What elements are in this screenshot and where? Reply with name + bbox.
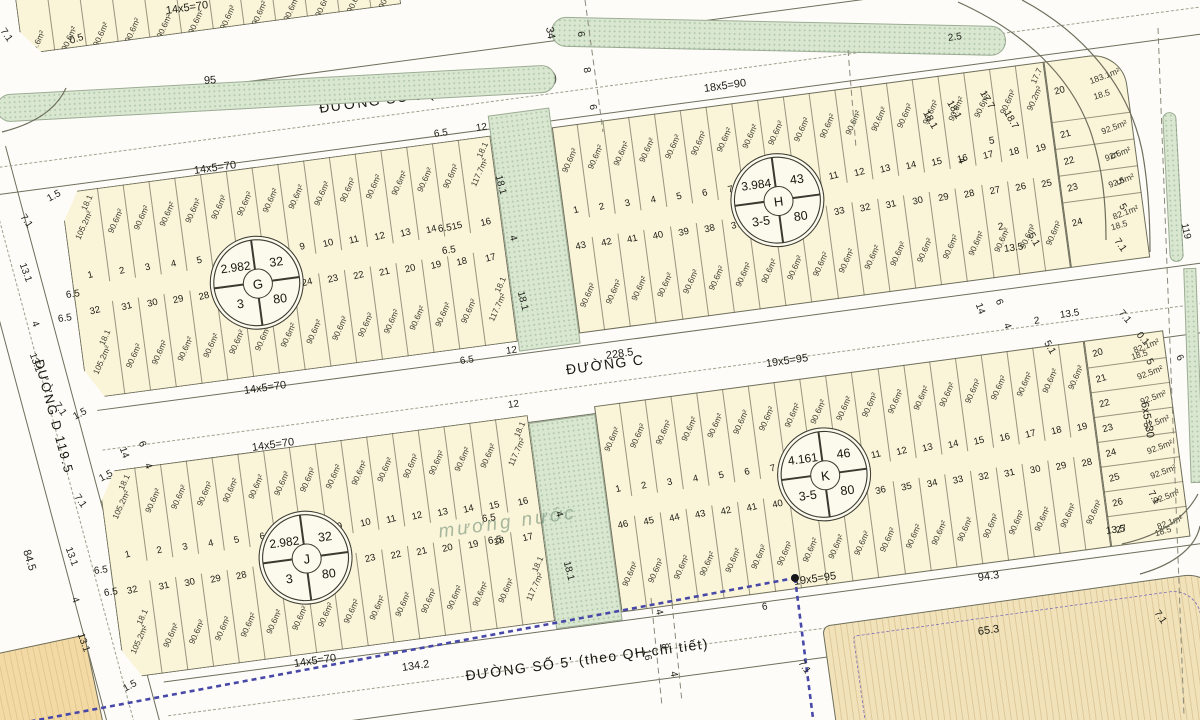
- circle-lot-count: 32: [309, 528, 341, 546]
- cadastral-map: ĐƯỜNG D 119.5 ĐƯỜNG SỐ 3 (theo QH chi ti…: [0, 0, 1200, 720]
- lot-number: 32: [859, 201, 872, 214]
- lot-number: 18: [1050, 424, 1063, 437]
- lot-number: 14: [904, 159, 917, 172]
- lot-number: 42: [719, 505, 732, 518]
- lot-area: 90.6m²: [217, 3, 237, 31]
- lot-area: 90.6m²: [679, 415, 699, 443]
- lot-depth: 18.1: [134, 607, 150, 626]
- lot-area: 90.6m²: [810, 250, 830, 278]
- lot-area: 90.6m²: [577, 281, 597, 309]
- lot-area: 90.6m²: [1044, 219, 1064, 247]
- lot-area: 117.7m²: [468, 157, 489, 188]
- lot-area: 90.6m²: [363, 173, 383, 201]
- lot-number: 39: [678, 226, 691, 239]
- lot-number: 38: [704, 222, 717, 235]
- lot-area: 90.6m²: [174, 335, 194, 363]
- lot-area: 90.6m²: [603, 278, 623, 306]
- lot-number: 23: [1066, 181, 1079, 194]
- lot-area: 90.6m²: [212, 615, 232, 643]
- lot-number: 13: [878, 163, 891, 176]
- lot-area: 90.6m²: [495, 577, 515, 605]
- lot-number: 31: [157, 580, 170, 593]
- lot-area: 90.6m²: [477, 442, 497, 470]
- street-label-duong-c: ĐƯỜNG C: [565, 351, 645, 377]
- lot-area: 90.6m²: [730, 408, 750, 436]
- lot-area: 90.6m²: [186, 618, 206, 646]
- lot-area: 92.5m²: [1107, 171, 1136, 190]
- lot-area: 90.6m²: [105, 207, 125, 235]
- lot-area: 105.2m²: [72, 209, 94, 241]
- lot-number: 20: [1091, 346, 1104, 359]
- lot-area: 90.6m²: [714, 126, 734, 154]
- lot-depth: 18.1: [511, 420, 527, 439]
- lot-area: 90.6m²: [341, 597, 361, 625]
- lot-area: 90.6m²: [1006, 509, 1026, 537]
- lot-area: 90.6m²: [758, 257, 778, 285]
- lot-number: 17: [1024, 428, 1037, 441]
- lot-area: 90.6m²: [733, 261, 753, 289]
- lot-area: 90.6m²: [182, 197, 202, 225]
- lot-number: 33: [833, 205, 846, 218]
- lot-number: 15: [930, 156, 943, 169]
- lot-area: 90.6m²: [800, 536, 820, 564]
- lot-number: 17: [484, 251, 497, 264]
- lot-number: 23: [326, 273, 339, 286]
- lot-number: 1: [123, 549, 131, 561]
- lot-area: 90.6m²: [1014, 370, 1034, 398]
- lot-area: 90.6m²: [988, 374, 1008, 402]
- lot-area: 90.6m²: [610, 140, 630, 168]
- lot-depth: 18.1: [79, 193, 95, 212]
- lot-number: 12: [853, 166, 866, 179]
- lot-area: 90.6m²: [920, 98, 940, 126]
- lot-number: 10: [359, 516, 372, 529]
- lot-area: 90.6m²: [842, 109, 862, 137]
- lot-area: 90.6m²: [123, 342, 143, 370]
- lot-area: 90.6m²: [91, 20, 111, 48]
- lot-area: 90.6m²: [432, 301, 452, 329]
- lot-area: 90.6m²: [894, 102, 914, 130]
- lot-area: 90.6m²: [414, 166, 434, 194]
- lot-number: 2: [597, 201, 605, 213]
- lot-area: 90.6m²: [653, 419, 673, 447]
- lot-area: 117.7m²: [486, 291, 507, 322]
- circle-floors-value: 3: [273, 570, 305, 588]
- lot-area: 90.6m²: [1040, 367, 1060, 395]
- lot-area: 90.6m²: [381, 308, 401, 336]
- lot-area: 90.6m²: [208, 193, 228, 221]
- lot-area: 90.6m²: [315, 601, 335, 629]
- lot-area: 90.6m²: [585, 143, 605, 171]
- lot-number: 3: [143, 262, 151, 274]
- lot-area: 90.6m²: [688, 129, 708, 157]
- lot-area: 90.6m²: [59, 25, 79, 53]
- lot-area: 90.6m²: [817, 112, 837, 140]
- lot-area: 90.6m²: [859, 391, 879, 419]
- lot-area: 92.5m²: [1149, 462, 1178, 481]
- lot-number: 14: [424, 223, 437, 236]
- lot-number: 1: [614, 483, 622, 495]
- lot-area: 90.6m²: [168, 483, 188, 511]
- lot-area: 90.6m²: [271, 469, 291, 497]
- lot-depth: 17.7: [1028, 66, 1044, 85]
- lot-area: 90.6m²: [888, 240, 908, 268]
- lot-area: 90.6m²: [937, 381, 957, 409]
- lot-number: 12: [895, 445, 908, 458]
- lot-area: 90.6m²: [440, 162, 460, 190]
- lot-area: 90.6m²: [559, 147, 579, 175]
- lot-area: 90.6m²: [885, 388, 905, 416]
- lot-number: 31: [885, 198, 898, 211]
- lot-area: 90.6m²: [877, 526, 897, 554]
- circle-lot-count: 46: [828, 445, 860, 463]
- lot-number: 18: [455, 255, 468, 268]
- lot-area: 90.6m²: [1084, 498, 1104, 526]
- lot-area: 90.6m²: [355, 311, 375, 339]
- lot-area: 90.6m²: [1018, 223, 1038, 251]
- lot-area: 90.6m²: [836, 247, 856, 275]
- lot-area: 90.6m²: [285, 183, 305, 211]
- lot-number: 7: [769, 463, 777, 475]
- lot-number: 4: [206, 538, 214, 550]
- lot-number: 15: [973, 434, 986, 447]
- lot-area: 90.6m²: [374, 456, 394, 484]
- lot-area: 90.6m²: [645, 557, 665, 585]
- lot-number: 30: [183, 576, 196, 589]
- lot-area: 90.6m²: [946, 95, 966, 123]
- lot-area: 90.6m²: [28, 29, 48, 57]
- lot-area: 90.6m²: [655, 271, 675, 299]
- lot-area: 90.6m²: [697, 550, 717, 578]
- lot-area: 90.6m²: [774, 540, 794, 568]
- lot-area: 90.6m²: [911, 384, 931, 412]
- lot-number: 29: [209, 573, 222, 586]
- lot-area: 90.6m²: [1066, 363, 1086, 391]
- lot-number: 11: [870, 448, 882, 461]
- lot-number: 21: [378, 266, 391, 279]
- lot-area: 90.6m²: [662, 133, 682, 161]
- lot-number: 28: [197, 290, 210, 303]
- lot-number: 5: [232, 534, 240, 546]
- circle-floors-value: 3: [225, 295, 257, 313]
- lot-number: 36: [874, 484, 887, 497]
- lot-area: 90.6m²: [200, 332, 220, 360]
- lot-area: 90.6m²: [281, 0, 301, 23]
- lot-number: 11: [347, 234, 359, 247]
- lot-number: 23: [363, 552, 376, 565]
- lot-area: 90.6m²: [671, 553, 691, 581]
- lot-area: 90.6m²: [756, 405, 776, 433]
- lot-area: 90.6m²: [348, 459, 368, 487]
- lot-depth: 18.1: [116, 473, 132, 492]
- lot-number: 15: [487, 499, 500, 512]
- lot-number: 17: [981, 149, 994, 162]
- lot-number: 46: [616, 518, 629, 531]
- lot-depth: 18.5: [1110, 218, 1129, 232]
- lot-area: 90.6m²: [392, 590, 412, 618]
- lot-area: 90.6m²: [914, 236, 934, 264]
- lot-number: 44: [668, 511, 681, 524]
- lot-number: 5: [675, 191, 683, 203]
- lot-area: 90.6m²: [765, 119, 785, 147]
- lot-number: 13: [921, 441, 934, 454]
- block-top-corner: 90.6m²90.6m²90.6m²90.6m²90.6m²90.6m²90.6…: [9, 0, 402, 55]
- circle-lot-count: 43: [781, 170, 813, 188]
- lot-number: 4: [649, 194, 657, 206]
- lot-area: 90.6m²: [707, 264, 727, 292]
- lot-number: 3: [181, 541, 189, 553]
- lot-number: 19: [429, 259, 442, 272]
- lot-number: 27: [989, 184, 1002, 197]
- lot-number: 22: [1098, 397, 1111, 410]
- lot-number: 11: [827, 170, 839, 183]
- lot-area: 90.6m²: [636, 136, 656, 164]
- lot-area: 90.6m²: [981, 512, 1001, 540]
- lot-number: 18: [492, 535, 505, 548]
- lot-area: 90.6m²: [834, 394, 854, 422]
- lot-number: 32: [978, 470, 991, 483]
- lot-number: 41: [626, 233, 639, 246]
- lot-area: 90.6m²: [311, 180, 331, 208]
- lot-number: 12: [410, 510, 423, 523]
- lot-area: 90.6m²: [344, 0, 364, 14]
- lot-number: 19: [1034, 142, 1047, 155]
- lot-area: 90.2m²: [1024, 84, 1044, 112]
- lot-number: 25: [1108, 471, 1121, 484]
- lot-area: 90.6m²: [782, 401, 802, 429]
- lot-number: 13: [399, 227, 412, 240]
- lot-area: 90.6m²: [303, 318, 323, 346]
- lot-area: 90.6m²: [929, 519, 949, 547]
- lot-number: 5: [195, 255, 203, 267]
- lot-number: 26: [1015, 181, 1028, 194]
- lot-number: 16: [517, 495, 530, 508]
- lot-depth: 18.1: [492, 275, 508, 294]
- lot-number: 23: [1101, 422, 1114, 435]
- lot-depth: 18.1: [529, 555, 545, 574]
- lot-area: 90.6m²: [289, 604, 309, 632]
- lot-number: 21: [1095, 372, 1108, 385]
- lot-area: 90.6m²: [142, 487, 162, 515]
- lot-number: 9: [298, 241, 306, 253]
- lot-number: 41: [745, 501, 758, 514]
- lot-area: 90.6m²: [681, 268, 701, 296]
- lot-area: 90.6m²: [366, 594, 386, 622]
- lot-number: 17: [521, 531, 534, 544]
- lot-area: 90.6m²: [260, 186, 280, 214]
- lot-number: 29: [171, 293, 184, 306]
- lot-number: 21: [415, 545, 428, 558]
- lot-area: 90.6m²: [784, 254, 804, 282]
- lot: 90.6m²: [10, 0, 56, 56]
- lot-number: 24: [1071, 216, 1084, 229]
- lot-area: 90.6m²: [312, 0, 332, 18]
- lot-area: 92.5m²: [1104, 145, 1133, 164]
- lot-area: 90.6m²: [149, 338, 169, 366]
- lot-area: 90.6m²: [160, 621, 180, 649]
- lot-number: 35: [900, 480, 913, 493]
- lot-number: 30: [146, 297, 159, 310]
- lot-area: 90.6m²: [940, 233, 960, 261]
- lot-depth: 18.1: [474, 140, 490, 159]
- lot-number: 28: [963, 188, 976, 201]
- lot-area: 90.6m²: [376, 0, 396, 10]
- lot-number: 19: [1076, 421, 1089, 434]
- lot-area: 90.6m²: [194, 480, 214, 508]
- lot-area: 105.2m²: [110, 489, 132, 521]
- lot-area: 117.7m²: [524, 571, 545, 602]
- lot-area: 90.6m²: [992, 226, 1012, 254]
- lot-number: 2: [640, 480, 648, 492]
- lot-number: 42: [600, 236, 613, 249]
- lot-area: 92.5m²: [1146, 437, 1175, 456]
- lot-area: 90.6m²: [862, 243, 882, 271]
- lot-area: 90.6m²: [791, 116, 811, 144]
- lot-area: 90.6m²: [826, 533, 846, 561]
- lot-number: 3: [666, 476, 674, 488]
- lot-number: 14: [947, 438, 960, 451]
- lot-area: 90.6m²: [971, 92, 991, 120]
- lot-area: 90.6m²: [629, 274, 649, 302]
- lot-number: 21: [1059, 128, 1072, 141]
- lot-area: 90.6m²: [238, 611, 258, 639]
- lot-number: 4: [169, 258, 177, 270]
- lot-number: 40: [652, 229, 665, 242]
- lot-area: 90.6m²: [1058, 502, 1078, 530]
- lot-area: 90.6m²: [263, 608, 283, 636]
- lot-number: 3: [623, 198, 631, 210]
- lot-number: 30: [911, 195, 924, 208]
- lot-number: 15: [450, 220, 463, 233]
- lot-number: 2: [155, 545, 163, 557]
- lot-area: 90.6m²: [400, 452, 420, 480]
- lot-area: 90.6m²: [704, 412, 724, 440]
- lot-number: 20: [1053, 84, 1066, 97]
- lot-number: 43: [574, 240, 587, 253]
- lot-area: 90.6m²: [444, 584, 464, 612]
- lot-number: 26: [1111, 496, 1124, 509]
- lot-number: 20: [441, 542, 454, 555]
- lot-area: 90.6m²: [601, 425, 621, 453]
- lot-number: 1: [86, 269, 94, 281]
- circle-floors-value: 3-5: [792, 487, 824, 505]
- lot-area: 90.6m²: [249, 0, 269, 27]
- lot-area: 90.6m²: [748, 543, 768, 571]
- lot-number: 6: [700, 187, 708, 199]
- lot-number: 30: [1029, 463, 1042, 476]
- lot-area: 90.6m²: [337, 176, 357, 204]
- lot-number: 20: [403, 262, 416, 275]
- lot-area: 183.1m²: [1089, 66, 1122, 86]
- lot-area: 90.6m²: [470, 580, 490, 608]
- lot-number: 16: [956, 152, 969, 165]
- lot-number: 14: [462, 503, 475, 516]
- lot-number: 34: [926, 477, 939, 490]
- lot-number: 6: [743, 466, 751, 478]
- lot-area: 92.5m²: [1139, 387, 1168, 406]
- lot-area: 90.6m²: [739, 122, 759, 150]
- circle-lot-count: 32: [260, 253, 292, 271]
- lot: 2482.1m²18.5: [1062, 193, 1147, 245]
- lot-area: 90.6m²: [278, 321, 298, 349]
- lot-area: 92.5m²: [1152, 487, 1181, 506]
- lot-area: 90.6m²: [1032, 505, 1052, 533]
- lot-number: 1: [572, 204, 580, 216]
- lot-area: 90.6m²: [627, 422, 647, 450]
- lot-area: 90.6m²: [388, 169, 408, 197]
- lot-number: 40: [771, 498, 784, 511]
- lot-number: 4: [691, 473, 699, 485]
- lot-number: 22: [389, 549, 402, 562]
- lot-area: 92.5m²: [1142, 412, 1171, 431]
- lot-number: 2: [118, 265, 126, 277]
- lot-area: 90.6m²: [123, 16, 143, 44]
- lot-area: 90.6m²: [297, 466, 317, 494]
- lot-area: 90.6m²: [452, 445, 472, 473]
- lot-number: 32: [88, 304, 101, 317]
- lot-depth: 18.1: [97, 328, 113, 347]
- lot-number: 16: [479, 216, 492, 229]
- lot-area: 90.6m²: [852, 529, 872, 557]
- lot-number: 27: [1115, 523, 1128, 536]
- lot-area: 90.6m²: [323, 463, 343, 491]
- lot-area: 90.6m²: [418, 587, 438, 615]
- lot-number: 43: [694, 508, 707, 521]
- lot-area: 90.6m²: [186, 8, 206, 36]
- lot-area: 90.6m²: [426, 449, 446, 477]
- lot-number: 24: [1105, 447, 1118, 460]
- lot-area: 90.6m²: [157, 200, 177, 228]
- lot-area: 90.6m²: [234, 190, 254, 218]
- lot-number: 45: [642, 515, 655, 528]
- lot: 20183.1m²18.5: [1043, 51, 1130, 123]
- lot-area: 90.6m²: [722, 546, 742, 574]
- lot-number: 33: [952, 474, 965, 487]
- lot-area: 90.6m²: [963, 377, 983, 405]
- lot-number: 12: [373, 230, 386, 243]
- lot-area: 90.6m²: [245, 473, 265, 501]
- lot-number: 31: [1003, 467, 1016, 480]
- lot-number: 25: [1041, 177, 1054, 190]
- lot-number: 10: [321, 237, 334, 250]
- lot-number: 22: [352, 269, 365, 282]
- lot-area: 90.6m²: [903, 522, 923, 550]
- lot-number: 18: [1007, 145, 1020, 158]
- circle-floors-value: 3-5: [745, 213, 777, 231]
- lot-number: 11: [385, 513, 397, 526]
- lot-number: 32: [125, 584, 138, 597]
- lot-number: 31: [120, 300, 133, 313]
- lot-area: 90.6m²: [406, 304, 426, 332]
- lot-area: 90.6m²: [329, 314, 349, 342]
- lot-area: 90.6m²: [808, 398, 828, 426]
- lot-number: 13: [436, 506, 449, 519]
- lot-number: 16: [999, 431, 1012, 444]
- lot-area: 90.6m²: [154, 12, 174, 40]
- lot-number: 5: [717, 470, 725, 482]
- lot-area: 105.2m²: [90, 344, 112, 376]
- lot-number: 19: [466, 538, 479, 551]
- lot-number: 22: [1063, 154, 1076, 167]
- lot-area: 117.7m²: [506, 436, 527, 467]
- lot-area: 90.6m²: [131, 204, 151, 232]
- lot-depth: 18.5: [1093, 87, 1112, 101]
- lot-area: 90.6m²: [619, 560, 639, 588]
- lot-area: 90.6m²: [955, 515, 975, 543]
- lot-number: 29: [937, 191, 950, 204]
- lot-number: 29: [1055, 460, 1068, 473]
- lot-area: 90.6m²: [997, 88, 1017, 116]
